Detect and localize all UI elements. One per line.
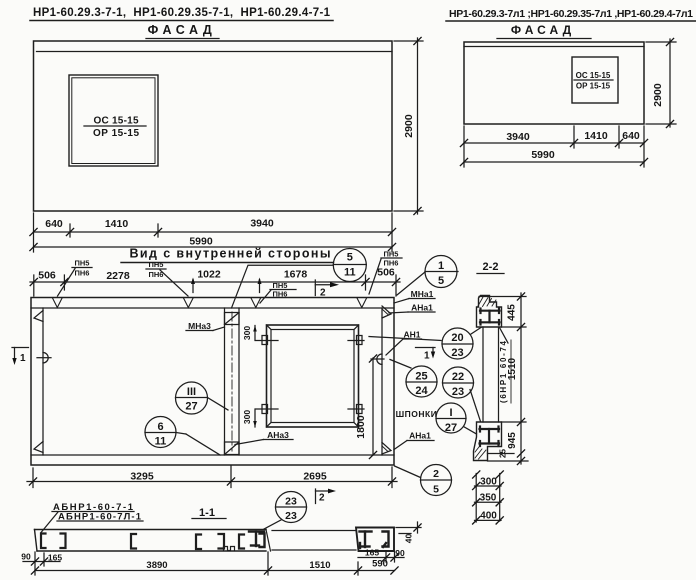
svg-text:2695: 2695 [303,471,327,483]
svg-text:25: 25 [415,371,427,383]
svg-text:590: 590 [372,559,388,570]
svg-text:445: 445 [507,304,518,321]
svg-text:945: 945 [507,432,518,449]
svg-text:1510: 1510 [507,357,518,380]
svg-text:АНа1: АНа1 [411,303,433,313]
svg-text:23: 23 [285,510,297,522]
svg-text:25: 25 [499,449,508,458]
svg-text:2278: 2278 [106,270,130,282]
svg-text:27: 27 [445,422,457,434]
svg-text:5: 5 [347,252,353,264]
svg-text:1510: 1510 [309,560,330,571]
svg-text:6: 6 [157,421,163,433]
svg-text:ПН6: ПН6 [75,269,90,278]
svg-text:5: 5 [433,484,439,496]
svg-text:165: 165 [365,548,379,558]
svg-text:11: 11 [155,436,167,448]
svg-text:1410: 1410 [105,218,129,230]
svg-text:3295: 3295 [130,471,154,483]
svg-text:5: 5 [438,275,444,287]
svg-text:22: 22 [452,371,464,383]
svg-text:90: 90 [21,552,31,562]
svg-text:23: 23 [285,496,297,508]
svg-text:ОС 15-15: ОС 15-15 [576,71,611,80]
svg-text:1022: 1022 [197,269,221,281]
svg-text:ФАСАД: ФАСАД [511,23,575,37]
svg-text:23: 23 [451,347,463,359]
svg-text:МНа3: МНа3 [188,321,211,331]
svg-text:ПН6: ПН6 [384,259,399,268]
svg-text:ОР 15-15: ОР 15-15 [576,82,611,91]
svg-text:1-1: 1-1 [199,507,215,519]
svg-text:1800: 1800 [355,415,367,439]
svg-text:АНа1: АНа1 [409,431,431,441]
svg-text:24: 24 [415,385,428,397]
svg-text:400: 400 [480,511,497,522]
svg-text:2: 2 [433,468,439,480]
svg-text:350: 350 [480,493,497,504]
svg-text:506: 506 [38,270,56,282]
svg-text:I: I [449,407,452,419]
svg-text:27: 27 [185,401,197,413]
svg-text:1: 1 [438,260,444,272]
svg-text:1: 1 [20,353,26,364]
svg-text:300: 300 [480,477,497,488]
svg-text:90: 90 [395,548,405,558]
svg-text:1410: 1410 [584,130,608,142]
svg-text:40: 40 [404,534,414,544]
svg-text:ФАСАД: ФАСАД [148,23,217,37]
svg-text:МНа1: МНа1 [411,289,434,299]
svg-text:НР1-60.29.3-7-1, НР1-60.29.35: НР1-60.29.3-7-1, НР1-60.29.35-7-1, НР1-6… [33,7,331,19]
svg-text:ОС 15-15: ОС 15-15 [94,116,139,127]
svg-text:1: 1 [424,351,430,362]
svg-text:640: 640 [622,130,640,142]
svg-text:300: 300 [242,326,252,340]
svg-text:300: 300 [242,410,252,424]
svg-text:ПН5: ПН5 [75,259,90,268]
svg-text:3940: 3940 [506,131,530,143]
svg-text:5990: 5990 [531,149,555,161]
svg-text:АНа3: АНа3 [267,430,289,440]
svg-text:Вид с внутренней стороны: Вид с внутренней стороны [130,247,332,261]
svg-text:20: 20 [451,332,463,344]
svg-text:23: 23 [452,386,464,398]
svg-text:1678: 1678 [284,269,308,281]
svg-text:2: 2 [319,493,325,504]
svg-text:11: 11 [344,267,356,279]
svg-text:165: 165 [48,553,62,563]
svg-text:НР1-60.29.3-7л1 ;НР1-60.29.35-: НР1-60.29.3-7л1 ;НР1-60.29.35-7л1 ,НР1-6… [449,8,693,20]
svg-text:3890: 3890 [146,560,167,571]
svg-text:ШПОНКИ: ШПОНКИ [396,409,438,419]
svg-text:506: 506 [377,267,395,279]
svg-text:ОР 15-15: ОР 15-15 [93,128,139,139]
svg-text:ПН5: ПН5 [384,250,399,259]
svg-text:ПН5: ПН5 [149,260,164,269]
svg-text:3940: 3940 [250,218,274,230]
svg-text:2900: 2900 [652,83,664,107]
svg-text:2-2: 2-2 [483,261,499,273]
svg-text:2900: 2900 [403,114,415,138]
svg-text:640: 640 [45,218,63,230]
svg-text:III: III [187,386,196,398]
